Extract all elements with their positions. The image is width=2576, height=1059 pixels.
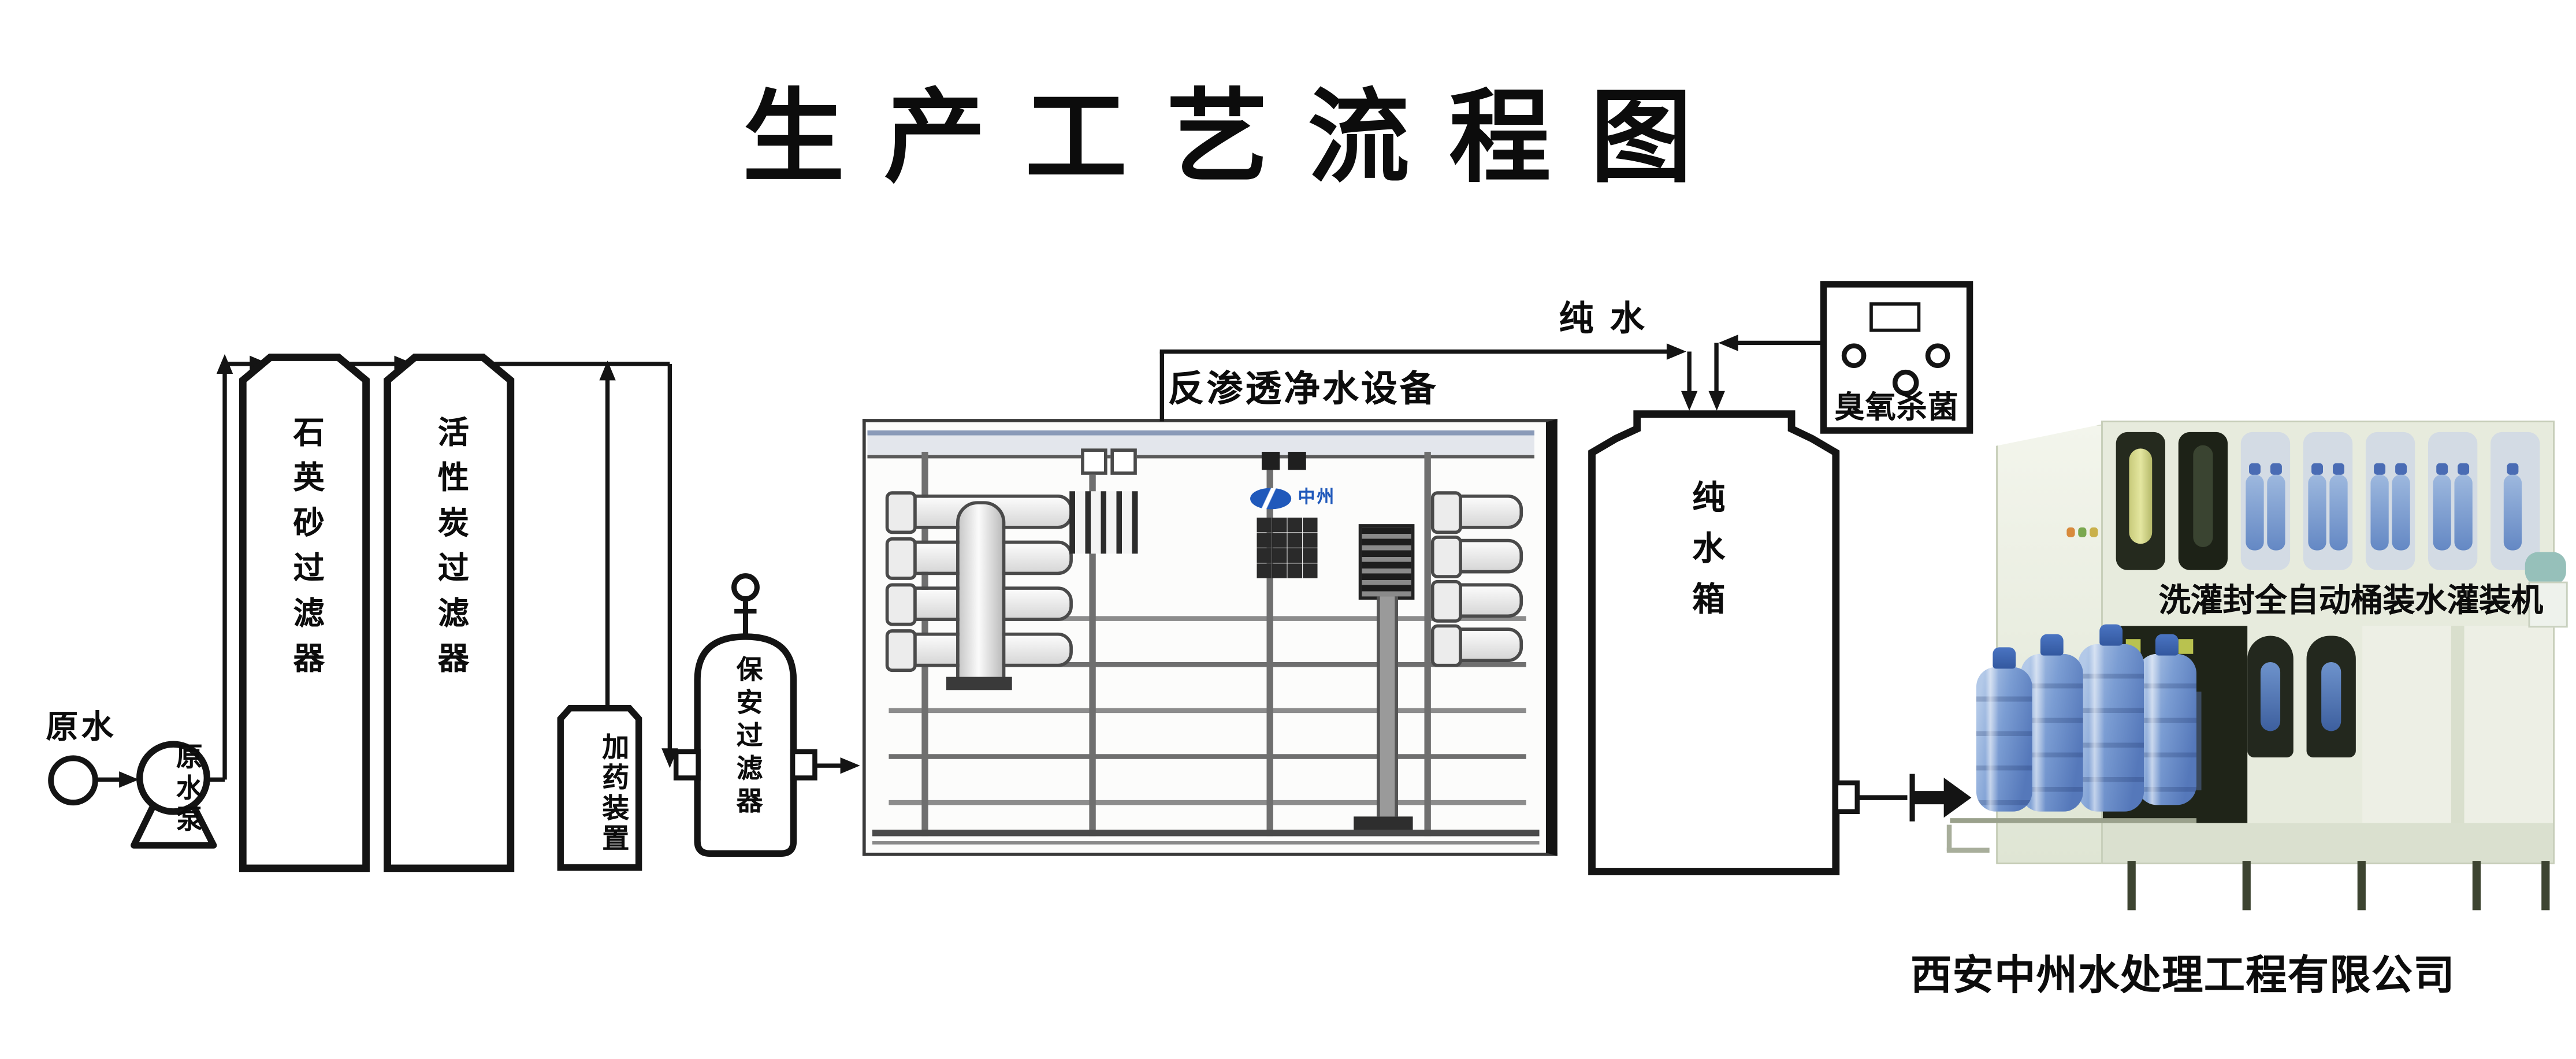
machine-leg <box>2358 861 2366 910</box>
vent-grille <box>1069 491 1138 553</box>
membrane-vessel <box>1437 495 1523 529</box>
conveyor-rail <box>1950 818 2196 823</box>
arrow-right-icon <box>1667 343 1686 359</box>
membrane-vessel <box>1437 584 1523 618</box>
pure-water-tank <box>1592 414 1857 872</box>
carbon-filter-label: 活性炭过滤器 <box>432 415 466 686</box>
bottle-icon <box>2433 475 2451 551</box>
arrow-up-icon <box>217 354 233 374</box>
arrow-down-icon <box>1681 391 1697 411</box>
bottle-cap-icon <box>2099 625 2122 646</box>
filling-machine-label: 洗灌封全自动桶装水灌装机 <box>2159 585 2543 619</box>
cylinder-base <box>946 677 1012 690</box>
machine-leg <box>2128 861 2136 910</box>
bottle-icon <box>2246 475 2263 551</box>
vessel-cap <box>1431 625 1462 667</box>
raw-water-label: 原水 <box>46 711 117 746</box>
ozone-generator: 臭氧杀菌 <box>1820 281 1973 433</box>
bottle-glint <box>2261 662 2280 731</box>
vessel-cap <box>886 491 917 534</box>
bottle-icon <box>2370 475 2388 551</box>
panel-lamp <box>1081 448 1107 474</box>
ozone-knob <box>1842 343 1867 368</box>
bottle-cap-icon <box>2249 463 2261 475</box>
ozone-label: 臭氧杀菌 <box>1827 391 1967 424</box>
ro-unit: 中州 <box>863 419 1558 856</box>
quartz-filter-label: 石英砂过滤器 <box>288 415 321 686</box>
water-bottle <box>2078 644 2144 812</box>
page-title: 生产工艺流程图 <box>742 86 1731 195</box>
machine-lower-panels <box>2362 626 2553 823</box>
arrow-left-icon <box>1719 335 1738 351</box>
vessel-cap <box>886 629 917 672</box>
arrow-down-icon <box>661 748 678 768</box>
vessel-cap <box>1431 536 1462 578</box>
vessel-cap <box>1431 580 1462 623</box>
ro-frame-post <box>1424 452 1430 836</box>
ozone-display-screen <box>1869 302 1920 332</box>
bottle-cap-icon <box>1993 647 2016 668</box>
arch-window <box>2247 636 2294 757</box>
bottle-glint <box>2321 662 2341 731</box>
arrow-down-icon <box>1708 391 1724 411</box>
machine-window-bottles <box>2366 432 2415 570</box>
arrow-up-icon <box>599 361 615 380</box>
machine-window-bottles <box>2428 432 2477 570</box>
membrane-vessel <box>1437 539 1523 574</box>
raw-water-pump-label: 原水泵 <box>171 742 199 836</box>
pure-water-tank-label: 纯水箱 <box>1686 480 1721 632</box>
arrow-right-icon <box>394 356 414 372</box>
yellow-cylinder <box>2129 448 2152 544</box>
ro-base-rail <box>872 830 1540 835</box>
pump-stand-pipe <box>1377 596 1398 816</box>
bottle-cap-icon <box>2436 463 2448 475</box>
pump-fin-block <box>1359 524 1415 600</box>
bottle-icon <box>2454 475 2472 551</box>
ro-frame-post <box>1266 452 1273 836</box>
valve-icon <box>734 576 757 599</box>
machine-window-bottles <box>2241 432 2290 570</box>
bottle-icon <box>2308 475 2326 551</box>
button-grid <box>1257 518 1317 578</box>
raw-water-source <box>51 758 95 802</box>
panel-button <box>1262 452 1280 470</box>
pure-water-label: 纯水 <box>1559 302 1661 339</box>
side-panel-mark <box>2066 527 2075 537</box>
machine-leg <box>2541 861 2549 910</box>
filling-machine: 洗灌封全自动桶装水灌装机 <box>1976 421 2563 913</box>
company-name: 西安中州水处理工程有限公司 <box>1910 954 2455 999</box>
ro-equipment-label: 反渗透净水设备 <box>1168 370 1438 409</box>
vessel-cap <box>886 537 917 580</box>
panel-mullion <box>2451 626 2465 823</box>
security-filter-label: 保安过滤器 <box>731 656 759 820</box>
water-bottle <box>2138 654 2196 805</box>
bottle-cap-icon <box>2040 634 2064 656</box>
arrow-right-icon <box>841 757 860 774</box>
ozone-knob <box>1926 343 1950 368</box>
conveyor-pipe <box>1947 848 1990 853</box>
dosing-device-label: 加药装置 <box>596 733 626 854</box>
bottle-cap-icon <box>2374 463 2385 475</box>
arch-window <box>2307 636 2356 757</box>
bottle-cap-icon <box>2333 463 2344 475</box>
ro-base-rail <box>872 841 1540 845</box>
dark-cylinder <box>2193 445 2213 547</box>
bottle-cap-icon <box>2507 463 2518 475</box>
bottle-cap-icon <box>2395 463 2407 475</box>
tank-outlet-nozzle <box>1836 783 1857 812</box>
cartridge-cylinder <box>956 501 1005 683</box>
panel-button <box>1288 452 1306 470</box>
vessel-cap <box>886 584 917 626</box>
arrow-right-icon <box>119 771 139 787</box>
bottle-icon <box>2267 475 2285 551</box>
machine-window-dark <box>2116 432 2165 570</box>
bottle-icon <box>2329 475 2347 551</box>
vessel-cap <box>1431 491 1462 534</box>
capper-unit <box>2525 552 2566 585</box>
bottle-cap-icon <box>2155 634 2179 656</box>
conveyor-pipe <box>1947 825 1952 851</box>
bottle-icon <box>2504 475 2522 551</box>
ro-top-rail <box>867 430 1534 458</box>
machine-window-bottles <box>2490 432 2540 570</box>
machine-leg <box>2473 861 2481 910</box>
machine-window-dark <box>2179 432 2228 570</box>
machine-leg <box>2243 861 2251 910</box>
panel-lamp <box>1110 448 1136 474</box>
membrane-vessel <box>1437 627 1523 662</box>
bottle-icon <box>2392 475 2410 551</box>
process-flow-diagram: 生产工艺流程图 原水 原水泵 石英砂过滤器 活性炭过滤器 加药装置 保安过滤器 … <box>0 0 2576 1059</box>
brand-label: 中州 <box>1298 489 1336 508</box>
machine-window-bottles <box>2303 432 2352 570</box>
brand-logo-icon <box>1250 488 1291 510</box>
water-bottle <box>1976 667 2032 812</box>
side-panel-mark <box>2090 527 2098 537</box>
bottle-cap-icon <box>2311 463 2323 475</box>
side-panel-mark <box>2078 527 2086 537</box>
bottle-cap-icon <box>2270 463 2282 475</box>
bottle-cap-icon <box>2458 463 2469 475</box>
capping-head <box>2179 639 2194 654</box>
tank-outlet-arrow-icon <box>1906 774 1972 821</box>
machine-base-strip <box>2103 823 2553 863</box>
arrow-right-icon <box>250 356 269 372</box>
